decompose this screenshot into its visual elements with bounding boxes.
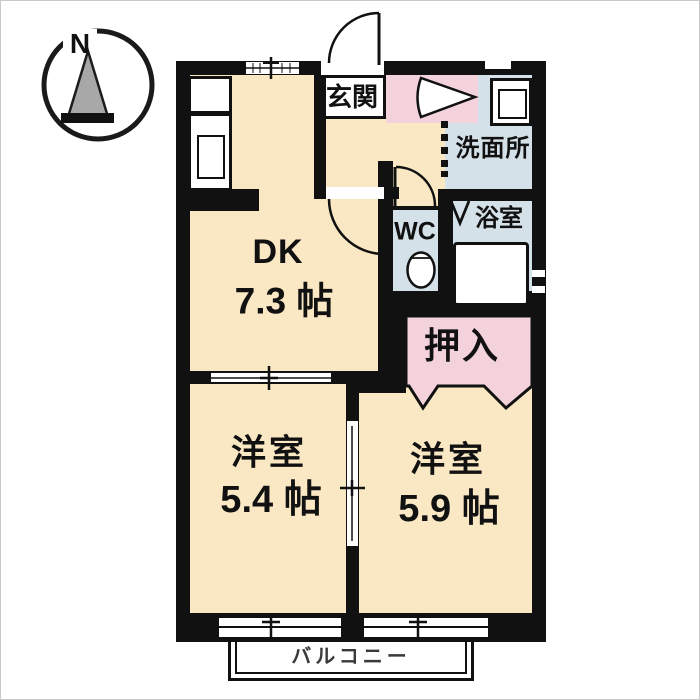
entrance-door-icon — [329, 13, 379, 65]
window — [364, 618, 488, 637]
kitchen-stove — [197, 135, 225, 179]
floor-plan: N DK 7.3 帖 洋室 5.4 帖 洋室 5.9 帖 押入 玄関 洗面所 W… — [0, 0, 700, 700]
wall — [378, 161, 393, 306]
kitchen-sink — [188, 76, 232, 114]
closet-label: 押入 — [424, 328, 500, 364]
window — [485, 61, 511, 69]
bedroom-left-size: 5.4 帖 — [220, 481, 321, 519]
sliding-door-opening — [211, 373, 331, 382]
dk-door-opening — [326, 187, 384, 199]
washing-machine-pan — [498, 89, 527, 119]
compass-icon — [44, 29, 152, 139]
wall — [314, 61, 326, 199]
washroom-doorway — [386, 75, 478, 123]
kitchen-counter-base — [176, 189, 259, 211]
wall — [393, 206, 438, 210]
bedroom-left-name: 洋室 — [231, 436, 307, 471]
window — [219, 618, 341, 637]
dk-room-size: 7.3 帖 — [235, 283, 334, 320]
wc-label: WC — [394, 220, 436, 245]
bedroom-right-name: 洋室 — [410, 443, 486, 478]
window — [532, 286, 545, 293]
sliding-door-opening — [347, 421, 358, 546]
bathtub — [453, 242, 529, 306]
washroom-label: 洗面所 — [456, 137, 531, 161]
wall — [532, 61, 546, 642]
bathroom-label: 浴室 — [475, 207, 523, 231]
balcony-label: バルコニー — [291, 647, 411, 667]
compass-north-label: N — [70, 30, 90, 58]
entrance-label: 玄関 — [326, 84, 378, 110]
entrance-opening — [321, 61, 384, 75]
wall — [438, 189, 453, 316]
bedroom-right-size: 5.9 帖 — [398, 490, 499, 528]
window — [246, 62, 299, 74]
dk-room-name: DK — [252, 235, 303, 269]
window — [532, 270, 545, 277]
